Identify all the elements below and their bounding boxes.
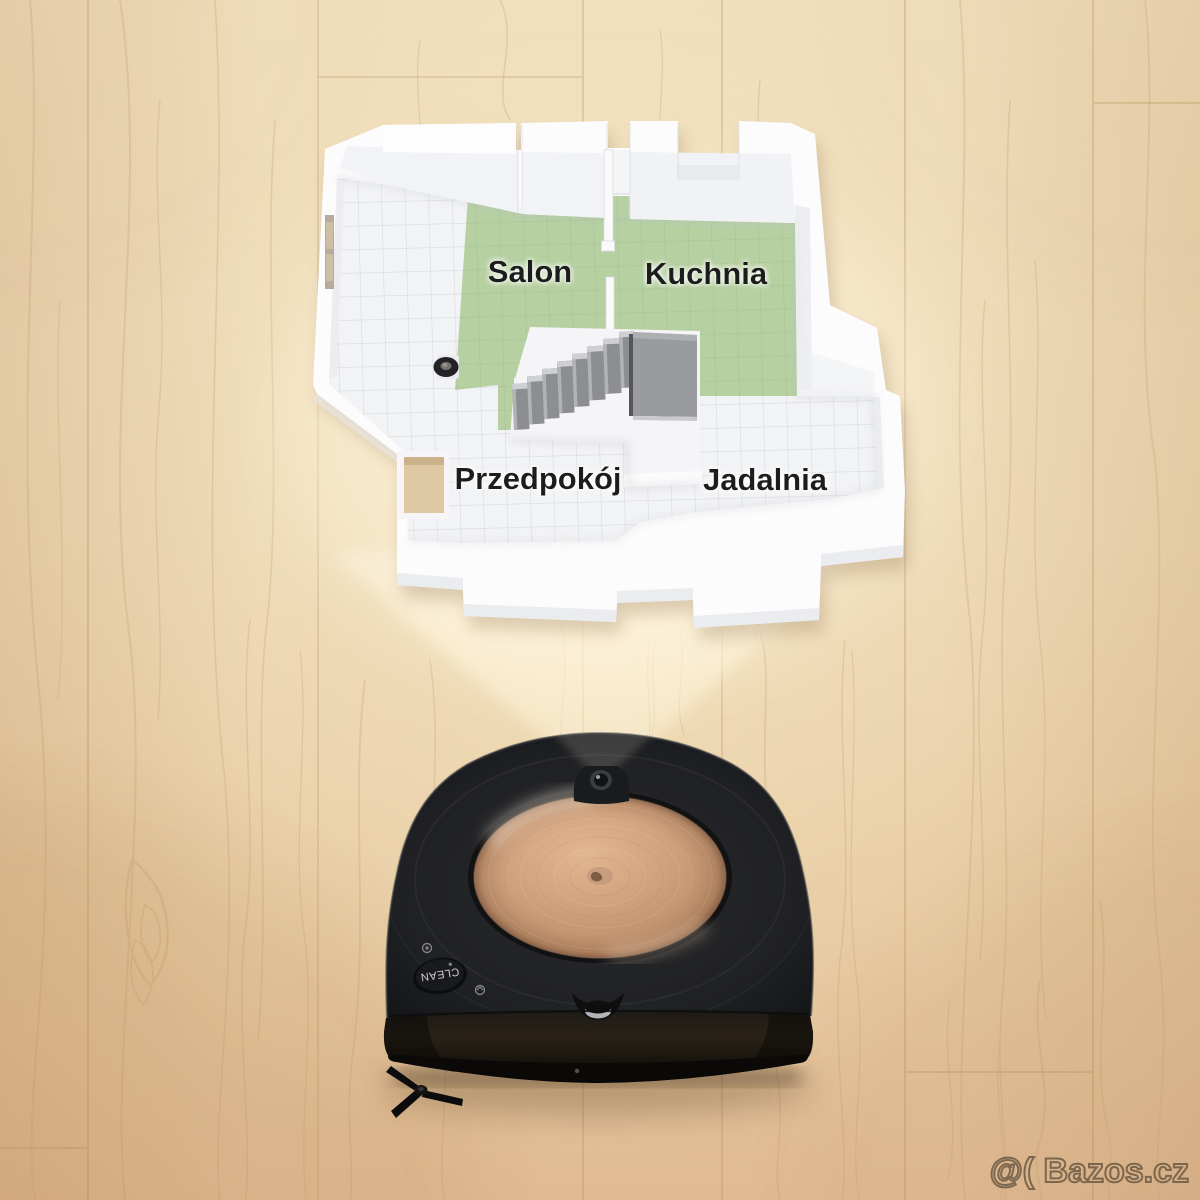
svg-text:Jadalnia: Jadalnia xyxy=(703,462,828,497)
svg-text:Przedpokój: Przedpokój xyxy=(454,461,621,496)
svg-text:Salon: Salon xyxy=(488,254,572,289)
svg-text:Kuchnia: Kuchnia xyxy=(645,256,768,291)
svg-text:@( Bazos.cz: @( Bazos.cz xyxy=(990,1152,1189,1190)
